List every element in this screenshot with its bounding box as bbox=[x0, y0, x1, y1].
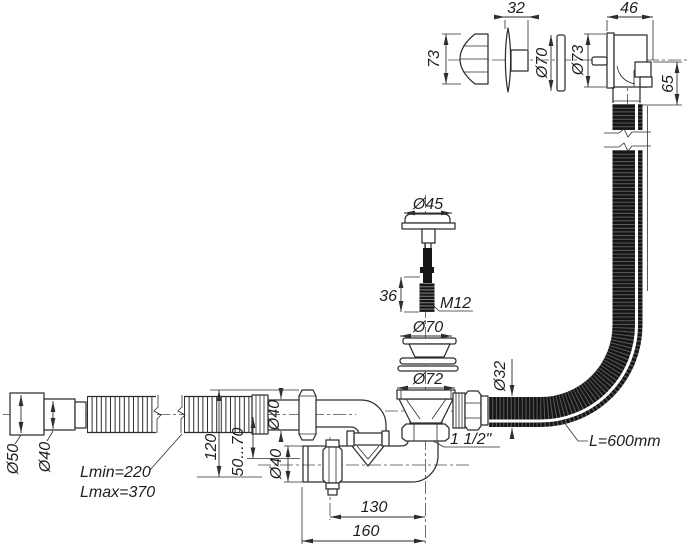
hose-end-fittings bbox=[10, 393, 86, 444]
dim-label: 32 bbox=[507, 0, 525, 17]
dim-label: 73 bbox=[426, 50, 443, 68]
dim-label: Ø50 bbox=[5, 444, 22, 475]
break-mark bbox=[604, 129, 651, 137]
dim-hose-end-diameter: Ø50 bbox=[5, 444, 22, 475]
overflow-housing bbox=[592, 33, 652, 103]
dim-label: 130 bbox=[361, 499, 388, 516]
dim-label: 36 bbox=[379, 288, 397, 305]
overflow-knob bbox=[460, 34, 488, 84]
branch-nut bbox=[465, 391, 481, 430]
break-mark bbox=[178, 395, 185, 433]
dim-cover-depth: 32 bbox=[494, 0, 539, 49]
housing-pin bbox=[592, 57, 607, 65]
dim-label: Lmax=370 bbox=[80, 484, 155, 501]
dim-label: Ø70 bbox=[412, 319, 443, 336]
overflow-hose bbox=[489, 104, 651, 421]
dim-label: 120 bbox=[203, 434, 220, 461]
dim-seal-diameter: Ø72 bbox=[397, 371, 455, 388]
tee-rim bbox=[397, 390, 455, 399]
dim-outlet-offset: 130 bbox=[330, 499, 425, 517]
tee-nut bbox=[402, 424, 449, 441]
dim-knob-height: 73 bbox=[426, 34, 461, 84]
dim-stud-length: 36 bbox=[379, 277, 420, 312]
drawing-canvas: 73 32 Ø70 Ø73 46 65 bbox=[0, 0, 700, 551]
pipe-end bbox=[303, 446, 308, 482]
housing-flange bbox=[607, 33, 614, 88]
dim-cover-plate-diameter: Ø70 bbox=[534, 35, 551, 91]
dim-label: Ø32 bbox=[492, 361, 509, 392]
dim-label: L=600mm bbox=[589, 433, 661, 450]
break-mark bbox=[604, 143, 651, 151]
dim-label: 46 bbox=[620, 0, 638, 17]
gasket bbox=[400, 358, 456, 364]
dim-label: Lmin=220 bbox=[80, 464, 151, 481]
dim-label: Ø40 bbox=[266, 400, 283, 431]
lower-nut bbox=[323, 447, 342, 483]
dim-label: Ø45 bbox=[412, 196, 443, 213]
cover-boss bbox=[511, 50, 528, 71]
dim-label: Ø70 bbox=[534, 48, 551, 79]
dimensions: 73 32 Ø70 Ø73 46 65 bbox=[5, 0, 682, 544]
cover-plate bbox=[557, 35, 565, 91]
dim-outlet-pipe-diameter: Ø40 bbox=[268, 446, 303, 482]
dim-plug-cap-diameter: Ø45 bbox=[404, 196, 452, 213]
dim-label: M12 bbox=[440, 295, 471, 312]
cover-disc bbox=[505, 28, 510, 92]
waste-hose bbox=[87, 395, 253, 433]
dim-overflow-hose-length: L=600mm bbox=[563, 421, 661, 450]
dim-stud-thread: M12 bbox=[433, 295, 473, 312]
dim-label: Ø40 bbox=[268, 449, 285, 480]
flange-nut bbox=[354, 433, 382, 445]
dim-label: Ø73 bbox=[570, 45, 587, 76]
washer bbox=[481, 396, 488, 425]
dim-label: Ø72 bbox=[412, 371, 443, 388]
technical-drawing: 73 32 Ø70 Ø73 46 65 bbox=[0, 0, 700, 551]
dim-label: 50...70 bbox=[230, 427, 247, 476]
plug-cap bbox=[405, 214, 450, 223]
union-nut bbox=[299, 390, 316, 440]
dim-hose-adapter-diameter: Ø40 bbox=[37, 442, 54, 473]
cone bbox=[352, 446, 384, 466]
dim-hose-length: Lmin=220 Lmax=370 bbox=[80, 434, 182, 501]
dim-label: Ø40 bbox=[37, 442, 54, 473]
dim-label: 65 bbox=[660, 75, 677, 93]
drain-strainer bbox=[398, 338, 458, 371]
dim-strainer-diameter: Ø70 bbox=[400, 319, 452, 336]
dim-label: 1 1/2" bbox=[450, 431, 493, 448]
dim-label: 160 bbox=[353, 523, 380, 540]
tee-body bbox=[399, 399, 453, 423]
